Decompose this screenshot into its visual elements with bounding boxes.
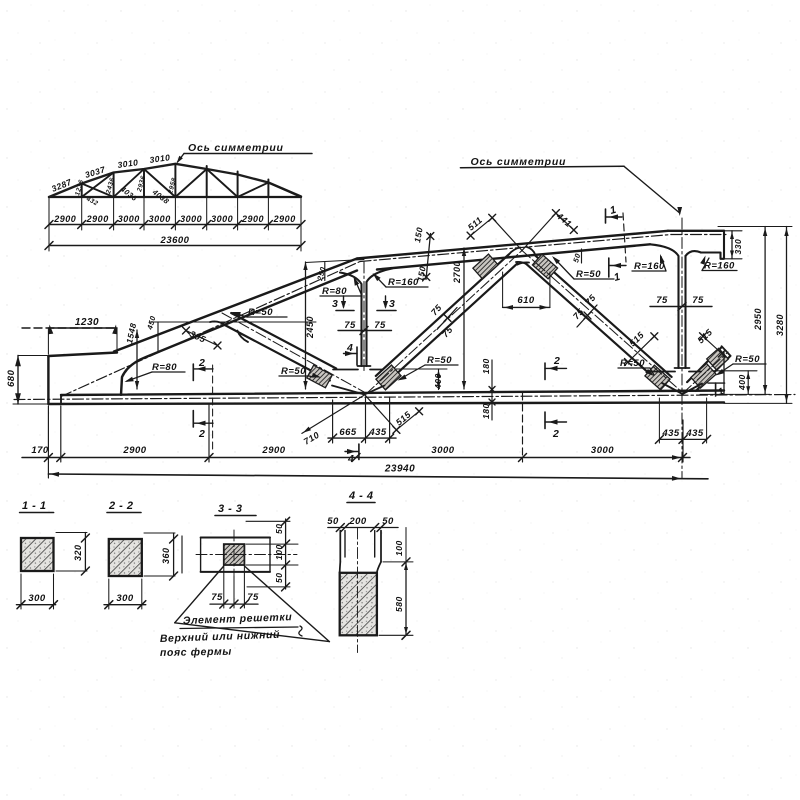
svg-text:170: 170 [31,445,49,456]
svg-text:2900: 2900 [53,214,76,224]
svg-text:3: 3 [332,298,338,310]
svg-text:пояс фермы: пояс фермы [160,646,232,659]
svg-text:200: 200 [348,516,367,527]
svg-text:4: 4 [347,453,354,465]
svg-text:300: 300 [28,593,46,604]
svg-text:R=50: R=50 [576,269,601,280]
svg-text:610: 610 [517,295,535,306]
svg-text:2900: 2900 [122,445,146,456]
svg-text:435: 435 [685,428,704,439]
svg-text:3280: 3280 [775,314,785,336]
svg-text:180: 180 [481,403,491,419]
svg-text:50: 50 [274,524,284,534]
svg-text:4 - 4: 4 - 4 [348,490,374,502]
svg-text:180: 180 [481,358,491,374]
svg-text:360: 360 [161,547,171,564]
svg-text:300: 300 [116,593,134,604]
svg-text:3 - 3: 3 - 3 [218,503,243,515]
svg-text:680: 680 [6,369,17,387]
svg-text:3000: 3000 [211,214,233,224]
svg-text:R=50: R=50 [620,358,645,369]
svg-text:R=50: R=50 [735,354,760,365]
svg-text:3000: 3000 [118,214,140,224]
svg-text:3000: 3000 [149,214,171,224]
svg-text:2: 2 [198,428,205,440]
svg-text:23600: 23600 [160,235,190,246]
svg-text:75: 75 [344,320,356,331]
svg-text:2900: 2900 [261,445,285,456]
svg-text:50: 50 [327,516,339,527]
svg-text:75: 75 [247,592,259,603]
svg-text:75: 75 [656,295,668,306]
svg-text:2: 2 [198,357,205,369]
svg-text:2900: 2900 [86,214,109,224]
svg-text:3000: 3000 [180,214,202,224]
svg-text:R=80: R=80 [152,362,177,373]
svg-text:R=160: R=160 [388,277,419,288]
svg-text:400: 400 [433,373,443,390]
svg-text:75: 75 [211,592,223,603]
svg-text:50: 50 [274,573,284,583]
svg-text:665: 665 [339,427,357,438]
svg-text:435: 435 [368,427,387,438]
svg-text:400: 400 [737,374,747,391]
svg-text:Ось симметрии: Ось симметрии [188,142,284,154]
svg-text:2900: 2900 [273,214,296,224]
svg-text:3: 3 [389,298,395,310]
svg-text:580: 580 [394,596,404,612]
svg-text:2 - 2: 2 - 2 [108,500,134,512]
svg-text:1 - 1: 1 - 1 [22,500,47,512]
svg-text:R=50: R=50 [281,366,306,377]
svg-text:2: 2 [553,355,560,367]
svg-text:2700: 2700 [452,261,462,284]
svg-text:2450: 2450 [305,316,315,339]
svg-text:1230: 1230 [75,317,99,328]
svg-text:R=50: R=50 [427,355,452,366]
svg-text:75: 75 [692,295,704,306]
svg-text:320: 320 [73,544,83,561]
svg-text:100: 100 [394,540,404,556]
svg-text:330: 330 [733,239,743,255]
svg-text:435: 435 [661,428,680,439]
svg-text:75: 75 [374,320,386,331]
svg-text:R=50: R=50 [248,307,273,318]
svg-text:100: 100 [274,544,284,560]
svg-text:2950: 2950 [753,308,763,331]
svg-text:2900: 2900 [241,214,264,224]
svg-text:3000: 3000 [431,445,454,456]
svg-text:3000: 3000 [591,445,614,456]
svg-text:2: 2 [552,428,559,440]
svg-text:23940: 23940 [384,464,415,475]
svg-text:R=160: R=160 [704,261,735,272]
